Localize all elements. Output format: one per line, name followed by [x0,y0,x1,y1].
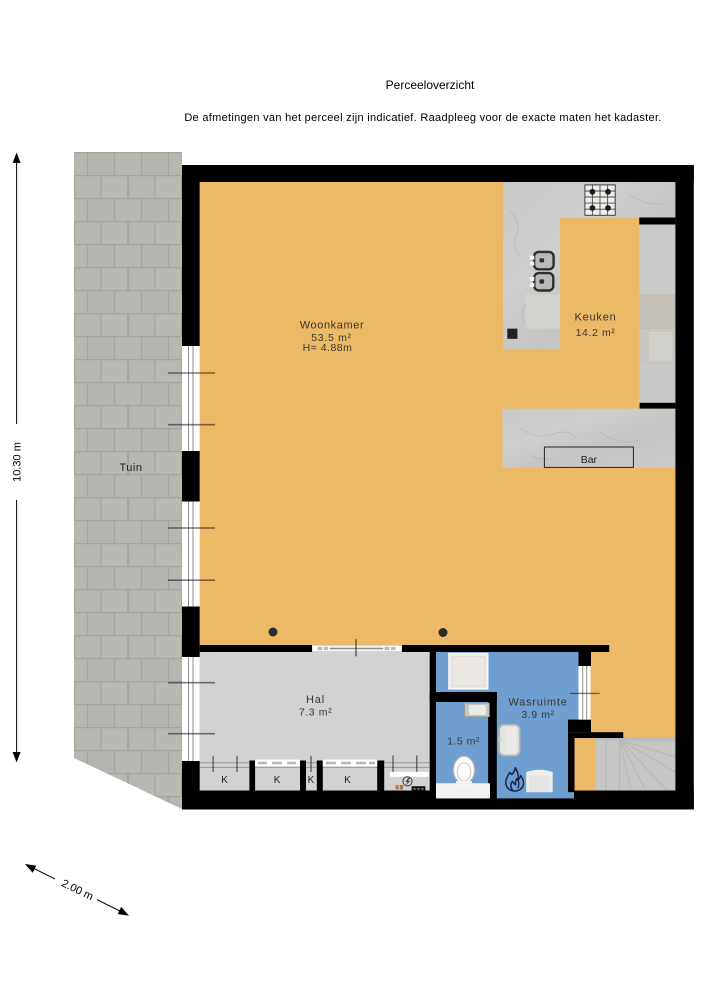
svg-text:K: K [274,775,281,786]
svg-text:1.5 m²: 1.5 m² [447,735,480,747]
svg-text:2.00 m: 2.00 m [60,878,95,904]
svg-text:De afmetingen van het perceel: De afmetingen van het perceel zijn indic… [184,112,661,124]
svg-text:Keuken: Keuken [574,312,616,324]
svg-text:K: K [344,775,351,786]
svg-text:14.2 m²: 14.2 m² [576,327,616,339]
svg-text:7.3 m²: 7.3 m² [299,706,332,718]
svg-text:3.9 m²: 3.9 m² [521,709,554,721]
svg-text:Wasruimte: Wasruimte [508,696,567,708]
svg-text:Tuin: Tuin [120,462,143,474]
svg-text:Hal: Hal [306,694,325,706]
svg-text:Perceeloverzicht: Perceeloverzicht [386,78,475,92]
svg-text:H= 4.88m: H= 4.88m [303,342,353,354]
svg-text:10.30 m: 10.30 m [12,442,24,482]
svg-text:Woonkamer: Woonkamer [300,320,365,332]
svg-text:K: K [308,775,315,786]
svg-text:Bar: Bar [581,454,598,466]
svg-text:K: K [221,775,228,786]
